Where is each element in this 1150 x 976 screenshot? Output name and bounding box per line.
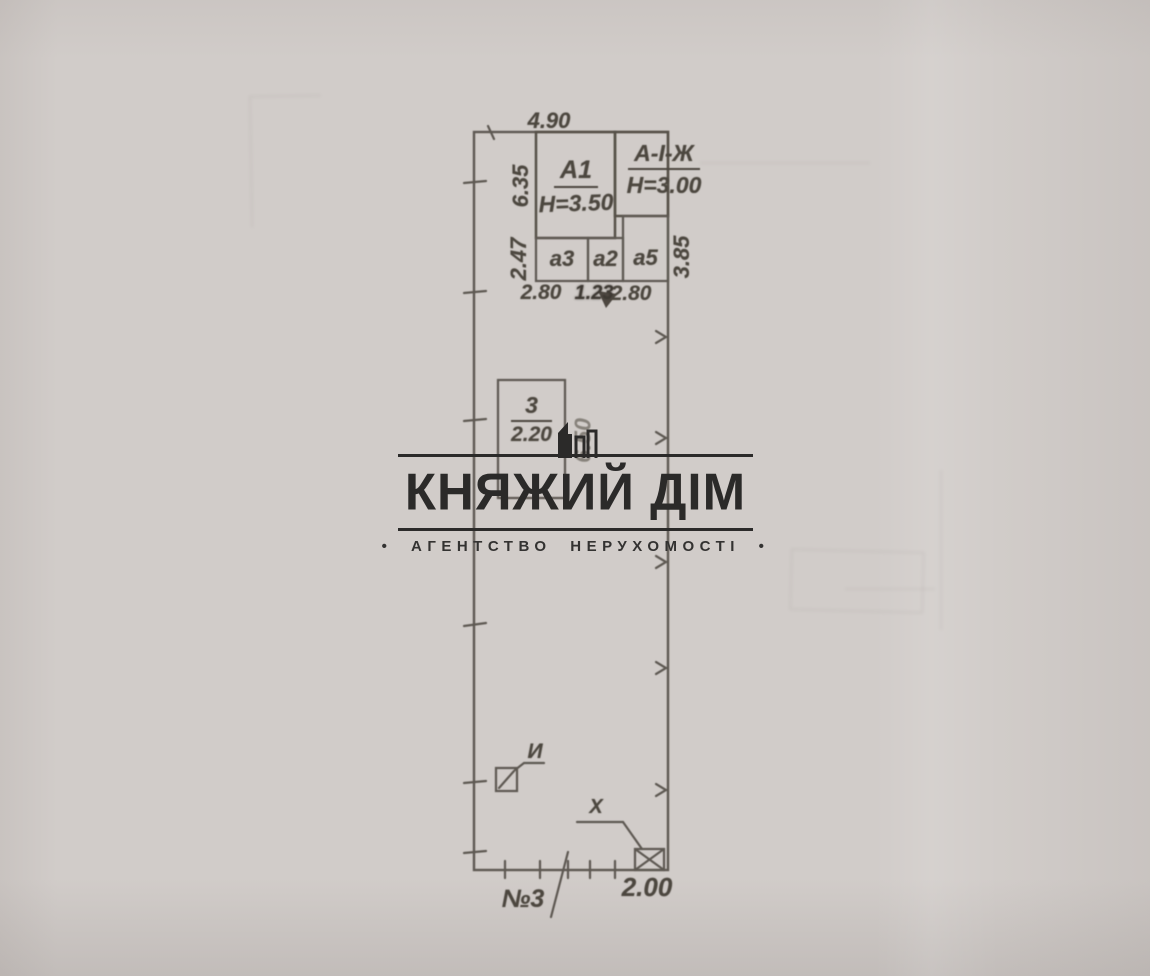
watermark-bottom-rule [398,528,753,531]
agency-title: КНЯЖИЙ ДІМ [370,465,781,518]
agency-logo-icon [546,420,606,458]
agency-watermark: КНЯЖИЙ ДІМ • АГЕНТСТВО НЕРУХОМОСТІ • [0,0,1150,976]
agency-subtitle: • АГЕНТСТВО НЕРУХОМОСТІ • [370,538,781,555]
